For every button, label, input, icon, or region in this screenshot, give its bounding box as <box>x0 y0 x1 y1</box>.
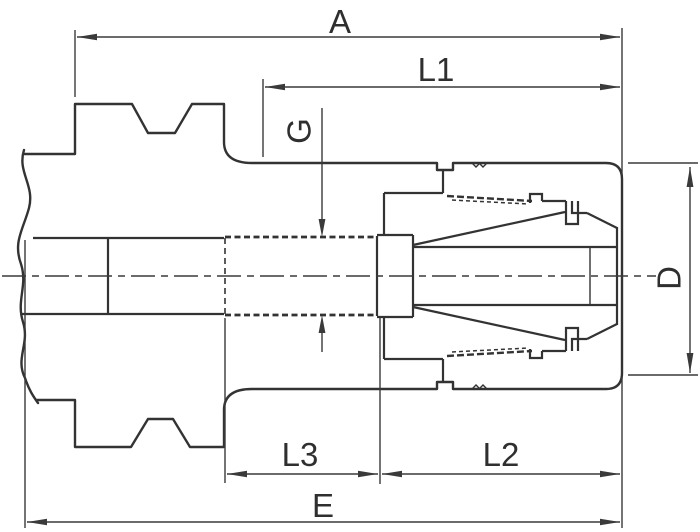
arrowhead <box>319 219 326 237</box>
arrowhead <box>358 471 378 478</box>
arrowhead <box>227 471 247 478</box>
dim-label-e: E <box>312 487 334 524</box>
dim-label-g: G <box>281 118 318 144</box>
arrowhead <box>600 84 620 91</box>
dim-label-d: D <box>651 266 688 290</box>
arrowhead <box>319 315 326 333</box>
drawing-canvas: A L1 G D L3 L2 E <box>0 0 700 532</box>
dim-label-l3: L3 <box>282 436 319 473</box>
dimension-e-total: E <box>27 487 620 525</box>
arrowhead <box>600 34 620 41</box>
arrowhead <box>265 84 285 91</box>
arrowhead <box>77 34 97 41</box>
dimension-a-overall: A <box>77 3 620 40</box>
nut-thread-contact-bottom2 <box>452 348 528 352</box>
dimension-l3: L3 <box>227 436 378 477</box>
arrowhead <box>687 167 694 187</box>
arrowhead <box>600 519 620 526</box>
arrowhead <box>600 471 620 478</box>
engineering-drawing: A L1 G D L3 L2 E <box>0 0 700 532</box>
dim-label-l2: L2 <box>483 436 520 473</box>
dimension-l1: L1 <box>265 51 620 90</box>
arrowhead <box>27 519 47 526</box>
dim-label-l1: L1 <box>418 51 455 88</box>
nut-thread-contact-top2 <box>452 200 528 204</box>
dimension-l2: L2 <box>382 436 620 477</box>
dim-label-a: A <box>329 3 351 40</box>
arrowhead <box>382 471 402 478</box>
arrowhead <box>687 353 694 373</box>
dimension-d-diameter: D <box>651 167 694 373</box>
